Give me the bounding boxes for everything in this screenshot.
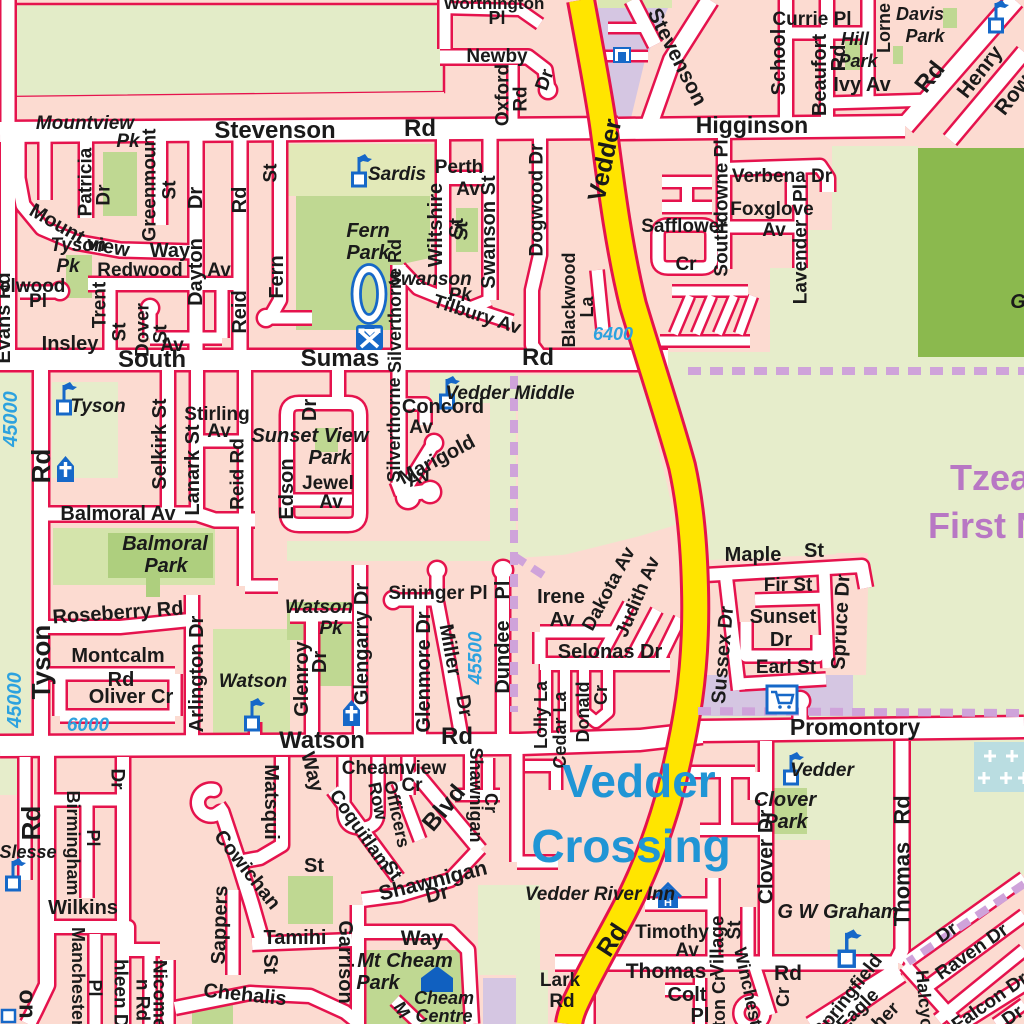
svg-text:Cr: Cr xyxy=(591,685,611,705)
svg-text:Park: Park xyxy=(144,555,188,577)
svg-text:Wiltshire: Wiltshire xyxy=(425,183,447,267)
svg-text:Montcalm: Montcalm xyxy=(71,645,164,667)
svg-text:Fern: Fern xyxy=(346,220,389,242)
svg-text:Edson: Edson xyxy=(276,458,298,519)
svg-text:Fir St: Fir St xyxy=(764,575,813,596)
svg-text:Av: Av xyxy=(762,220,786,241)
svg-text:Concord: Concord xyxy=(402,396,484,418)
svg-text:Watson: Watson xyxy=(285,597,353,618)
svg-text:Vedder River Inn: Vedder River Inn xyxy=(525,884,675,905)
svg-text:Sumas: Sumas xyxy=(301,345,380,372)
svg-text:Way: Way xyxy=(150,240,191,262)
svg-text:Promontory: Promontory xyxy=(790,714,921,740)
svg-text:Vedder: Vedder xyxy=(562,755,716,807)
svg-text:Rd: Rd xyxy=(441,723,473,750)
svg-text:Rd: Rd xyxy=(511,86,532,111)
svg-text:Tzeachten: Tzeachten xyxy=(950,457,1024,498)
svg-text:Reid Rd: Reid Rd xyxy=(228,438,249,510)
svg-text:Clover: Clover xyxy=(754,789,817,811)
svg-text:Greenmount: Greenmount xyxy=(140,128,161,242)
svg-text:Av: Av xyxy=(550,609,576,631)
svg-text:Dr: Dr xyxy=(107,768,128,790)
svg-text:Stevenson: Stevenson xyxy=(214,117,335,144)
svg-text:First Nation: First Nation xyxy=(928,505,1024,546)
svg-text:Lavender: Lavender xyxy=(791,219,812,304)
svg-text:Currie Pl: Currie Pl xyxy=(772,9,851,30)
svg-text:Foxglove: Foxglove xyxy=(730,199,813,220)
svg-text:on: on xyxy=(14,989,41,1018)
svg-text:Lark: Lark xyxy=(540,970,581,991)
svg-text:Selonas Dr: Selonas Dr xyxy=(558,641,663,663)
svg-text:Av: Av xyxy=(160,335,184,356)
svg-text:Donald: Donald xyxy=(573,682,593,743)
svg-text:G: G xyxy=(1010,291,1024,313)
svg-text:Pk: Pk xyxy=(56,256,81,277)
svg-text:Rd: Rd xyxy=(890,795,915,824)
svg-text:Tamihi: Tamihi xyxy=(264,927,327,949)
svg-text:Mt Cheam: Mt Cheam xyxy=(357,950,453,972)
svg-text:45000: 45000 xyxy=(4,672,26,729)
svg-text:Trent: Trent xyxy=(90,281,111,328)
svg-text:Tyson: Tyson xyxy=(70,396,125,417)
svg-text:Fern: Fern xyxy=(266,255,288,298)
svg-text:Jewel: Jewel xyxy=(302,473,354,494)
svg-text:Garrison: Garrison xyxy=(334,920,356,1003)
svg-text:Pk: Pk xyxy=(319,618,344,639)
svg-text:Davis: Davis xyxy=(896,4,944,24)
svg-text:Silverthorne Rd: Silverthorne Rd xyxy=(385,239,405,373)
svg-text:Insley: Insley xyxy=(42,333,100,355)
svg-text:Pl: Pl xyxy=(29,291,47,312)
svg-text:Watson: Watson xyxy=(279,727,365,754)
svg-text:St: St xyxy=(110,322,131,342)
svg-text:Pl: Pl xyxy=(85,979,105,996)
svg-text:Dr: Dr xyxy=(94,184,115,206)
svg-text:Rd: Rd xyxy=(774,962,802,985)
svg-text:Tyson: Tyson xyxy=(26,625,56,700)
svg-text:Av: Av xyxy=(456,179,480,200)
svg-text:Cr: Cr xyxy=(773,987,793,1007)
svg-text:Rd: Rd xyxy=(549,991,574,1012)
svg-text:Swanson St: Swanson St xyxy=(478,175,500,289)
svg-text:Dogwood Dr: Dogwood Dr xyxy=(527,143,548,257)
svg-text:La: La xyxy=(577,296,597,318)
svg-text:Arlington Dr: Arlington Dr xyxy=(186,615,208,732)
svg-text:Dr: Dr xyxy=(451,693,477,719)
svg-text:Glengarry Dr: Glengarry Dr xyxy=(351,583,373,705)
svg-text:Dundee: Dundee xyxy=(492,620,514,693)
svg-text:Dr: Dr xyxy=(185,187,207,209)
svg-text:Balmoral Av: Balmoral Av xyxy=(60,503,176,525)
svg-text:Thomas: Thomas xyxy=(890,842,915,926)
svg-text:Lanark St: Lanark St xyxy=(182,424,204,515)
svg-text:Higginson: Higginson xyxy=(696,112,808,138)
svg-text:Matsqui: Matsqui xyxy=(260,764,282,840)
svg-text:Dr: Dr xyxy=(770,629,792,651)
svg-text:Newby: Newby xyxy=(466,46,528,67)
svg-text:Sardis: Sardis xyxy=(368,164,426,185)
svg-text:School: School xyxy=(768,29,790,96)
svg-text:Verbena Dr: Verbena Dr xyxy=(732,166,833,187)
svg-text:Silverthorne: Silverthorne xyxy=(384,377,404,482)
svg-text:St: St xyxy=(452,221,473,241)
svg-text:Rd: Rd xyxy=(26,449,56,484)
svg-text:Sunset: Sunset xyxy=(750,606,817,628)
svg-text:Cr: Cr xyxy=(481,793,501,813)
svg-text:Park: Park xyxy=(905,26,945,46)
svg-text:Balmoral: Balmoral xyxy=(122,533,208,555)
svg-text:Pl: Pl xyxy=(83,829,103,846)
svg-text:Earl St: Earl St xyxy=(756,657,817,678)
svg-text:Cr: Cr xyxy=(401,775,423,796)
svg-text:Park: Park xyxy=(356,972,400,994)
svg-text:6000: 6000 xyxy=(67,715,110,736)
svg-text:hleen Dr: hleen Dr xyxy=(110,959,131,1024)
svg-text:Cheam: Cheam xyxy=(414,988,474,1008)
svg-text:Clover Dr: Clover Dr xyxy=(755,810,778,905)
svg-text:Tyson: Tyson xyxy=(50,235,105,256)
svg-text:Park: Park xyxy=(838,51,878,71)
svg-text:St: St xyxy=(304,855,324,877)
svg-text:St: St xyxy=(160,180,181,200)
svg-text:45500: 45500 xyxy=(466,631,487,685)
svg-text:Oliver Cr: Oliver Cr xyxy=(89,686,174,708)
svg-text:Av: Av xyxy=(207,260,231,281)
svg-text:Park: Park xyxy=(346,242,390,264)
svg-text:45000: 45000 xyxy=(0,391,22,448)
svg-text:Way: Way xyxy=(401,927,444,950)
svg-text:Crossing: Crossing xyxy=(531,820,730,872)
svg-text:Redwood: Redwood xyxy=(97,260,183,281)
svg-text:Sininger Pl: Sininger Pl xyxy=(388,583,487,604)
svg-text:Hill: Hill xyxy=(841,29,870,49)
svg-text:Lolly La: Lolly La xyxy=(531,680,551,749)
svg-text:Reid: Reid xyxy=(229,290,251,333)
svg-text:Safflower: Safflower xyxy=(641,216,727,237)
svg-text:St: St xyxy=(261,163,282,183)
svg-text:Selkirk St: Selkirk St xyxy=(149,398,171,490)
svg-text:Rd: Rd xyxy=(229,187,251,214)
svg-text:G W Graham: G W Graham xyxy=(777,901,898,923)
svg-text:Cheamview: Cheamview xyxy=(342,758,447,779)
svg-text:Ivy Av: Ivy Av xyxy=(833,74,891,96)
svg-text:Colt: Colt xyxy=(668,984,707,1006)
svg-text:Cr: Cr xyxy=(675,254,697,275)
svg-text:Pk: Pk xyxy=(116,131,141,152)
svg-text:Thomas: Thomas xyxy=(626,960,707,983)
svg-text:Pl: Pl xyxy=(488,8,505,28)
svg-text:St: St xyxy=(259,954,281,974)
svg-text:Birmingham: Birmingham xyxy=(63,790,83,895)
svg-text:Rd: Rd xyxy=(522,344,554,371)
svg-text:Glenmore Dr: Glenmore Dr xyxy=(413,611,435,732)
svg-text:Sappers: Sappers xyxy=(208,885,233,965)
svg-text:St: St xyxy=(725,920,746,940)
svg-text:Pl: Pl xyxy=(691,1005,710,1024)
svg-text:Rd: Rd xyxy=(404,115,436,142)
svg-text:Av: Av xyxy=(319,492,343,513)
svg-text:Manchester: Manchester xyxy=(68,927,88,1024)
svg-text:Lorne: Lorne xyxy=(874,3,894,53)
svg-text:Vedder: Vedder xyxy=(790,760,855,781)
svg-text:Pl: Pl xyxy=(492,581,514,600)
svg-text:Sunset View: Sunset View xyxy=(251,425,370,447)
svg-text:Blackwood: Blackwood xyxy=(559,252,579,347)
svg-text:Dr: Dr xyxy=(309,651,331,673)
svg-text:Av: Av xyxy=(409,417,433,438)
svg-text:Slesse: Slesse xyxy=(0,842,57,862)
svg-text:Maple: Maple xyxy=(725,544,782,566)
svg-text:ington Cr: ington Cr xyxy=(709,974,729,1024)
svg-text:Av: Av xyxy=(675,940,699,961)
svg-text:Nicomen: Nicomen xyxy=(149,960,170,1024)
svg-text:Watson: Watson xyxy=(219,671,287,692)
svg-text:Perth: Perth xyxy=(435,157,484,178)
svg-text:Wilkins: Wilkins xyxy=(48,897,118,919)
svg-text:Irene: Irene xyxy=(537,586,585,608)
svg-text:Park: Park xyxy=(308,447,352,469)
svg-text:Centre: Centre xyxy=(415,1006,472,1024)
svg-text:Rd: Rd xyxy=(16,806,46,841)
svg-text:6400: 6400 xyxy=(593,324,633,344)
svg-text:St: St xyxy=(804,540,824,562)
svg-text:Dr: Dr xyxy=(299,399,321,421)
